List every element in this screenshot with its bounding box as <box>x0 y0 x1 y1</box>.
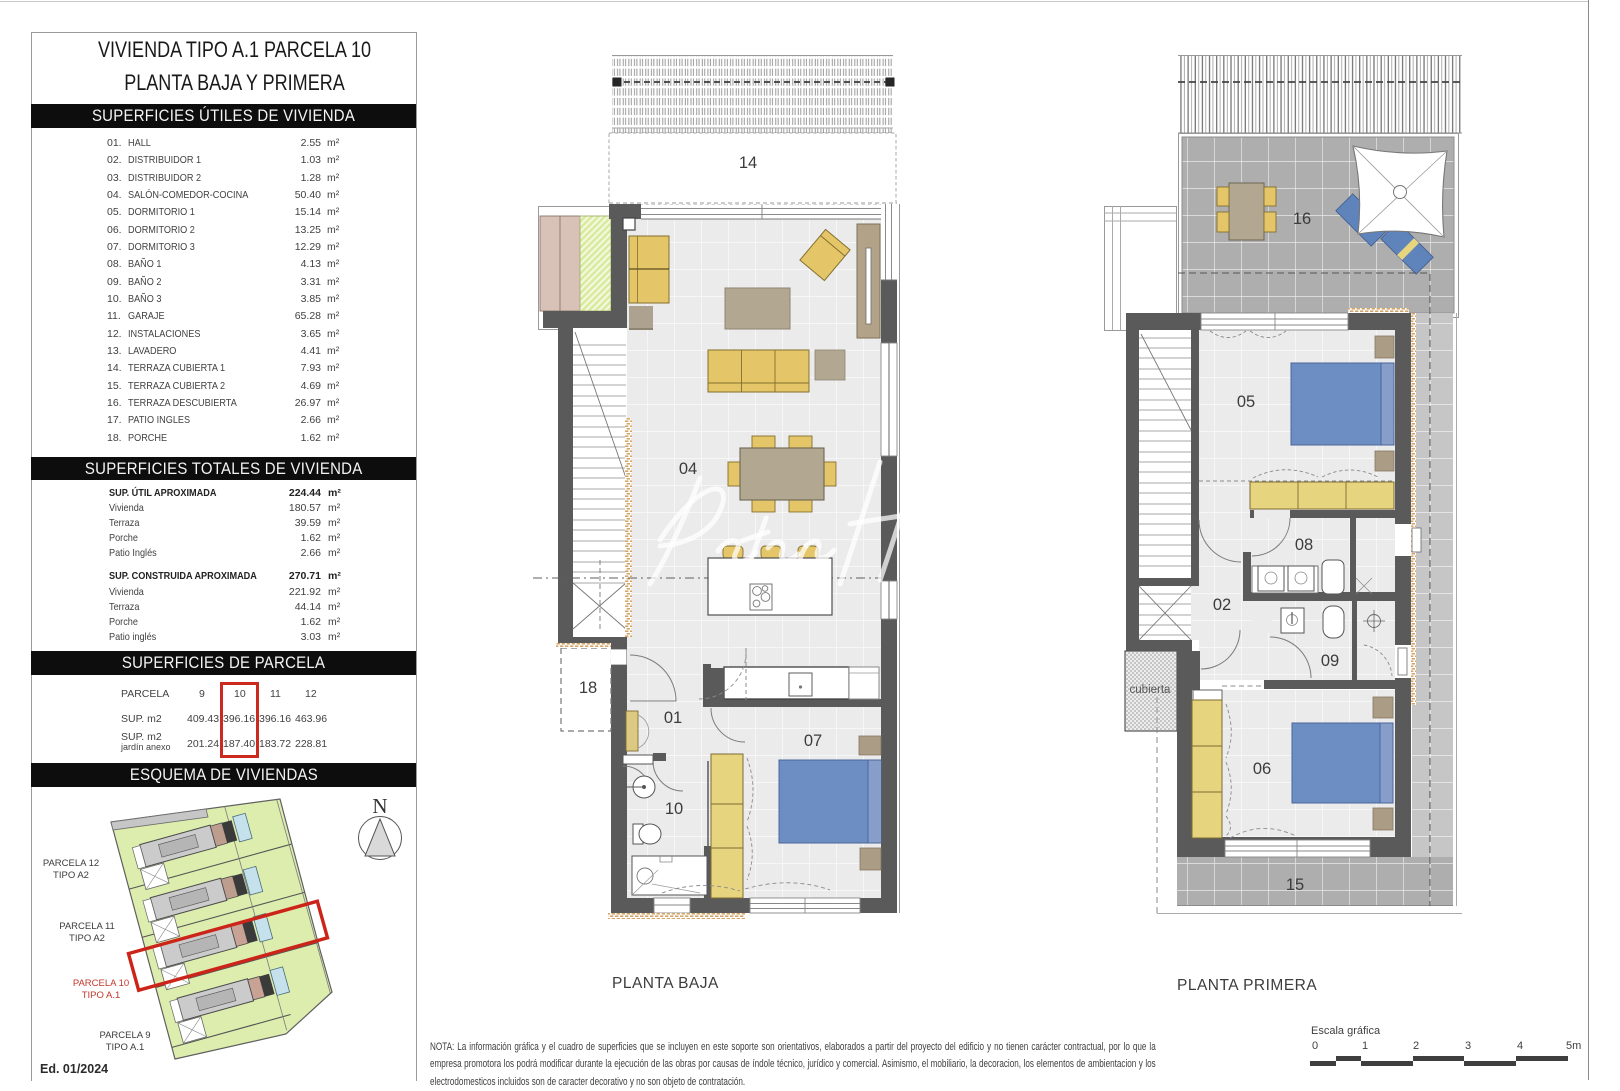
svg-text:09: 09 <box>1321 652 1339 670</box>
svg-text:04: 04 <box>679 460 697 478</box>
svg-text:14: 14 <box>739 154 757 172</box>
svg-text:07: 07 <box>804 732 822 750</box>
svg-text:08: 08 <box>1295 536 1313 554</box>
svg-text:02: 02 <box>1213 596 1231 614</box>
svg-text:cubierta: cubierta <box>1130 684 1172 696</box>
svg-text:15: 15 <box>1286 876 1304 894</box>
svg-text:05: 05 <box>1237 393 1255 411</box>
svg-text:06: 06 <box>1253 760 1271 778</box>
svg-text:01: 01 <box>664 709 682 727</box>
svg-text:18: 18 <box>579 679 597 697</box>
svg-text:N: N <box>372 794 387 818</box>
svg-text:10: 10 <box>665 800 683 818</box>
svg-text:16: 16 <box>1293 210 1311 228</box>
